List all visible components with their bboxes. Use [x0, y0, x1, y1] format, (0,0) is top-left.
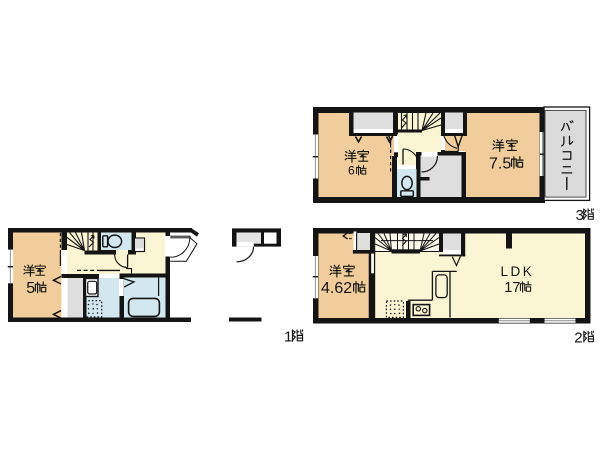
svg-text:3: 3 [576, 207, 584, 224]
svg-text:4.62: 4.62 [321, 280, 352, 297]
svg-text:LDK: LDK [501, 264, 535, 279]
svg-text:5: 5 [26, 280, 35, 297]
svg-text:6: 6 [348, 164, 355, 178]
svg-text:1: 1 [284, 329, 292, 346]
svg-text:7.5: 7.5 [489, 155, 511, 172]
svg-text:17: 17 [504, 280, 520, 296]
svg-text:2: 2 [574, 330, 582, 347]
